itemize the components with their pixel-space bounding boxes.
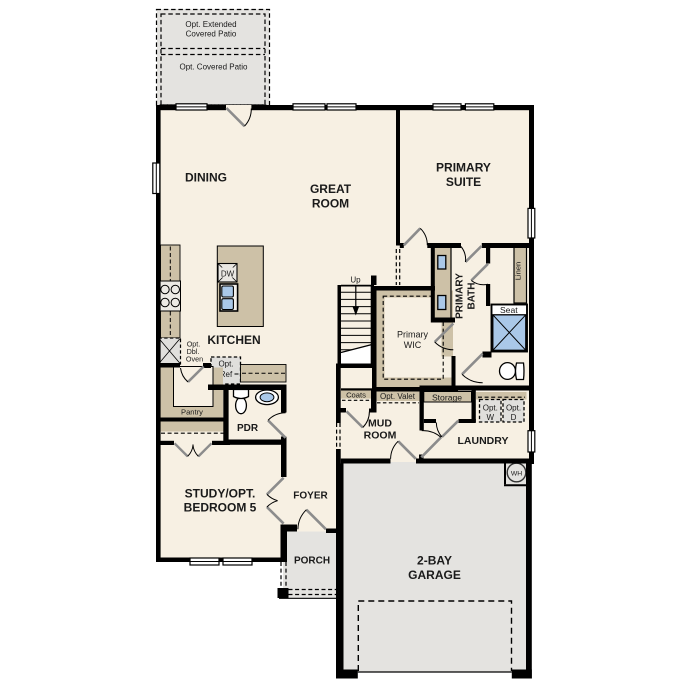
svg-text:WIC: WIC <box>404 340 422 350</box>
svg-text:Coats: Coats <box>346 391 366 400</box>
svg-text:Oven: Oven <box>186 355 203 364</box>
svg-text:Covered Patio: Covered Patio <box>186 30 237 39</box>
svg-text:LAUNDRY: LAUNDRY <box>458 435 509 447</box>
svg-text:Pantry: Pantry <box>181 407 203 416</box>
svg-text:MUD: MUD <box>368 417 392 429</box>
svg-text:KITCHEN: KITCHEN <box>207 333 260 347</box>
svg-text:FOYER: FOYER <box>293 491 328 502</box>
svg-text:BEDROOM 5: BEDROOM 5 <box>184 500 257 514</box>
svg-text:ROOM: ROOM <box>364 430 397 442</box>
svg-text:PRIMARY: PRIMARY <box>455 273 466 319</box>
svg-text:PRIMARY: PRIMARY <box>436 160 491 174</box>
svg-text:D: D <box>511 413 517 422</box>
svg-text:DW: DW <box>221 270 235 279</box>
svg-text:Storage: Storage <box>432 392 462 402</box>
svg-text:SUITE: SUITE <box>446 175 481 189</box>
svg-text:Linen: Linen <box>513 262 522 281</box>
svg-text:Primary: Primary <box>397 329 428 339</box>
svg-text:BATH: BATH <box>467 282 478 309</box>
svg-text:WH: WH <box>511 470 522 477</box>
svg-text:Opt. Valet: Opt. Valet <box>380 392 416 401</box>
svg-text:Opt. Covered Patio: Opt. Covered Patio <box>179 63 248 72</box>
svg-text:DINING: DINING <box>185 170 227 184</box>
svg-text:Opt.: Opt. <box>506 403 521 412</box>
svg-text:PORCH: PORCH <box>294 556 330 567</box>
svg-text:STUDY/OPT.: STUDY/OPT. <box>185 486 256 500</box>
svg-text:GARAGE: GARAGE <box>408 568 461 582</box>
svg-text:ROOM: ROOM <box>312 196 349 210</box>
svg-text:Seat: Seat <box>500 305 518 315</box>
svg-text:W: W <box>487 413 495 422</box>
svg-text:GREAT: GREAT <box>310 182 352 196</box>
svg-text:Opt.: Opt. <box>218 359 233 368</box>
svg-text:Up: Up <box>350 276 361 285</box>
svg-text:2-BAY: 2-BAY <box>417 553 452 567</box>
svg-text:PDR: PDR <box>237 423 259 434</box>
svg-text:Opt. Extended: Opt. Extended <box>185 20 236 29</box>
svg-text:Opt.: Opt. <box>483 403 498 412</box>
